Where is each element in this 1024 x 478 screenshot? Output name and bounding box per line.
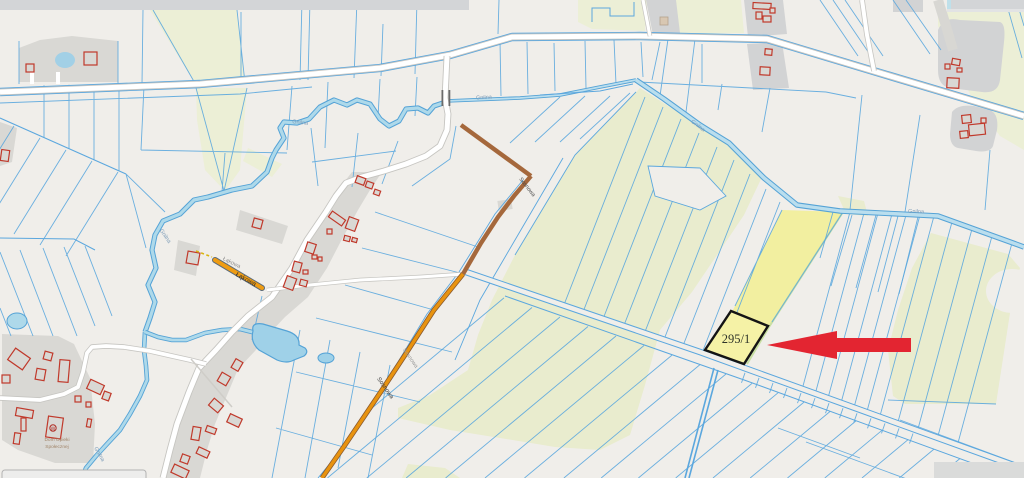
svg-text:W: W bbox=[51, 427, 56, 433]
svg-text:Dom Opieki: Dom Opieki bbox=[44, 437, 69, 443]
svg-text:Gnilna: Gnilna bbox=[908, 209, 925, 216]
svg-text:295/1: 295/1 bbox=[722, 332, 750, 346]
svg-text:Społecznej: Społecznej bbox=[45, 444, 68, 450]
svg-text:Gnilna: Gnilna bbox=[476, 94, 493, 101]
